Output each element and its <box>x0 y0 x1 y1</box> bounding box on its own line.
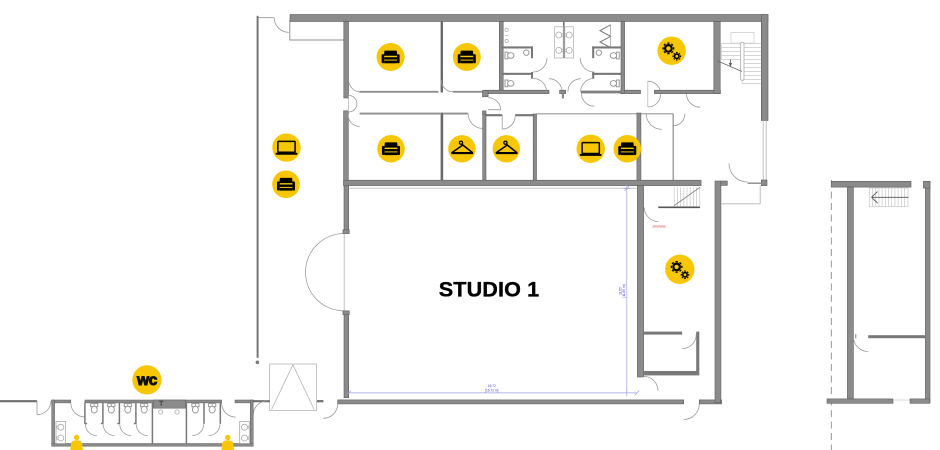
svg-text:smetana: smetana <box>652 224 665 228</box>
svg-text:wc: wc <box>136 372 158 389</box>
svg-text:[11.65 m]: [11.65 m] <box>622 284 626 297</box>
svg-text:STUDIO 1: STUDIO 1 <box>439 277 539 302</box>
svg-text:[16.72 m]: [16.72 m] <box>485 389 498 393</box>
